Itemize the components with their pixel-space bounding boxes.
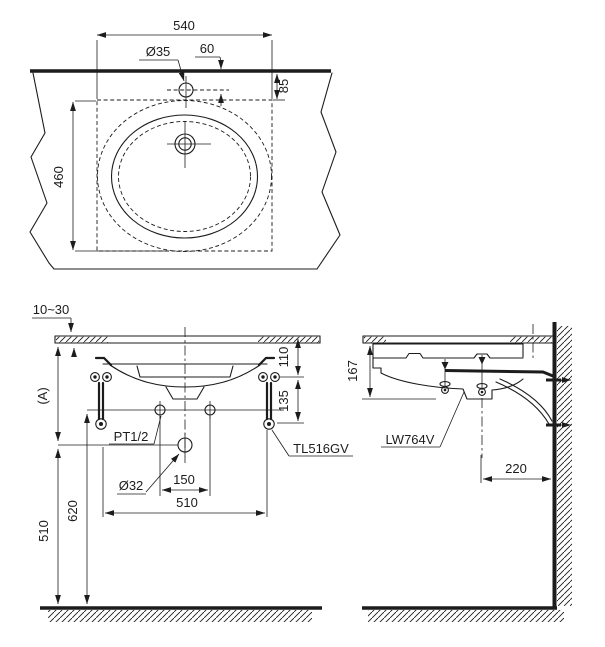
basin-rim	[112, 115, 258, 238]
dim-510-vertical: 510	[36, 449, 58, 604]
faucet-hole-callout: Ø35	[139, 44, 184, 81]
dim-60: 60	[195, 41, 221, 106]
dim-rim-offset: 85	[276, 79, 291, 93]
front-view: 10~30 (A) 510 620 110 135	[32, 302, 353, 622]
dim-10-30: 10~30	[32, 302, 74, 357]
counter-slab-front	[55, 336, 320, 343]
label-basin-model: LW764V	[386, 432, 435, 447]
dim-110: 110	[276, 339, 304, 377]
side-view: 167 LW764V 220	[345, 322, 572, 622]
dim-135: 135	[276, 380, 304, 423]
drain-plan	[167, 122, 211, 168]
label-supply-thread: PT1/2	[114, 429, 149, 444]
counter-hatch-side-right	[510, 337, 552, 343]
label-drain-dia: Ø32	[119, 478, 144, 493]
counter-break-line-right	[317, 73, 340, 269]
dim-drain-height: 510	[36, 520, 51, 542]
dim-85: 85	[273, 74, 291, 100]
dim-supply-pitch: 150	[173, 472, 195, 487]
dim-460: 460	[51, 101, 168, 251]
counter-hatch-left	[56, 337, 108, 343]
top-view: 540 Ø35 60 85 460	[30, 18, 340, 269]
bracket-callout: TL516GV	[272, 430, 353, 456]
dim-hanger-span: 510	[176, 495, 198, 510]
dim-hanger-hole-pitch: 135	[276, 390, 291, 412]
floor-hatch-side	[368, 610, 564, 622]
basin-outer-rim-hidden	[98, 101, 272, 252]
supply-callout: PT1/2	[109, 416, 161, 444]
faucet-hole-plan	[167, 76, 229, 108]
dim-220: 220	[481, 398, 551, 483]
counter-slab-side	[363, 336, 553, 343]
mounting-bracket-left	[91, 373, 112, 430]
dim-counter-thickness: 10~30	[33, 302, 70, 317]
label-bracket-model: TL516GV	[293, 441, 349, 456]
technical-drawing-page: 540 Ø35 60 85 460	[0, 0, 605, 647]
dim-supply-height: 620	[65, 500, 80, 522]
dim-620: 620	[65, 414, 87, 604]
wall-hatch	[557, 326, 572, 606]
counter-hatch-side-left	[364, 337, 386, 343]
dim-a: (A)	[35, 347, 58, 441]
dim-hanger-top-offset: 110	[276, 347, 291, 368]
support-brace	[496, 379, 552, 424]
dim-drain-wall-offset: 220	[505, 461, 527, 476]
floor-hatch-front	[48, 610, 312, 622]
label-faucet-hole-dia: Ø35	[146, 44, 171, 59]
drain-callout: Ø32	[117, 454, 179, 494]
dim-cutout-depth: 460	[51, 166, 66, 188]
dim-cutout-width: 540	[173, 18, 195, 33]
washbasin-installation-drawing: 540 Ø35 60 85 460	[0, 0, 605, 647]
dim-540: 540	[97, 18, 272, 99]
counter-hatch-right	[258, 337, 319, 343]
dim-167: 167	[345, 346, 436, 399]
basin-callout: LW764V	[381, 392, 464, 447]
dim-basin-depth: 167	[345, 360, 360, 382]
dim-faucet-offset: 60	[200, 41, 214, 56]
support-arm	[445, 371, 553, 377]
dim-height-a: (A)	[35, 387, 50, 404]
wall-bolt-lower	[477, 355, 487, 395]
